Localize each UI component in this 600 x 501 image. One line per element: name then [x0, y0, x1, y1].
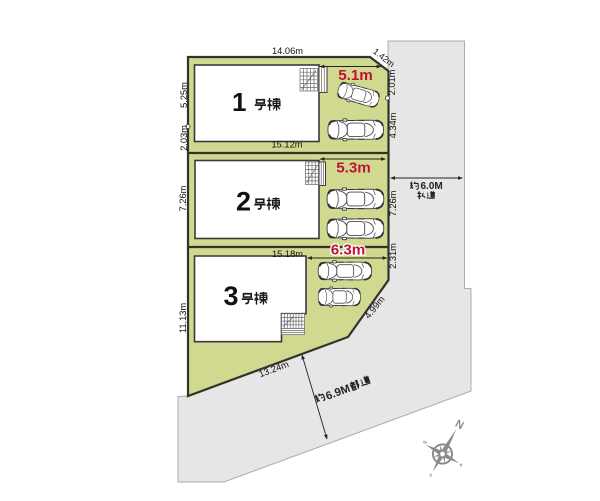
svg-text:2.03m: 2.03m	[179, 125, 189, 151]
svg-text:15.12m: 15.12m	[271, 139, 302, 149]
svg-text:6.0M: 6.0M	[421, 181, 443, 192]
svg-text:5.3m: 5.3m	[336, 160, 371, 177]
svg-text:11.13m: 11.13m	[178, 303, 188, 334]
svg-text:6.3m: 6.3m	[331, 242, 366, 259]
svg-text:2.01m: 2.01m	[387, 69, 397, 95]
svg-text:3: 3	[223, 281, 238, 311]
svg-text:5.1m: 5.1m	[338, 67, 373, 84]
svg-text:15.18m: 15.18m	[272, 249, 303, 259]
svg-text:2.31m: 2.31m	[388, 243, 398, 269]
svg-text:14.06m: 14.06m	[272, 46, 303, 56]
svg-text:7.26m: 7.26m	[388, 190, 398, 216]
svg-text:5.25m: 5.25m	[179, 82, 189, 108]
svg-text:2: 2	[236, 187, 251, 217]
svg-text:7.26m: 7.26m	[178, 185, 188, 211]
svg-text:4.34m: 4.34m	[388, 112, 398, 138]
svg-text:1: 1	[232, 87, 246, 117]
